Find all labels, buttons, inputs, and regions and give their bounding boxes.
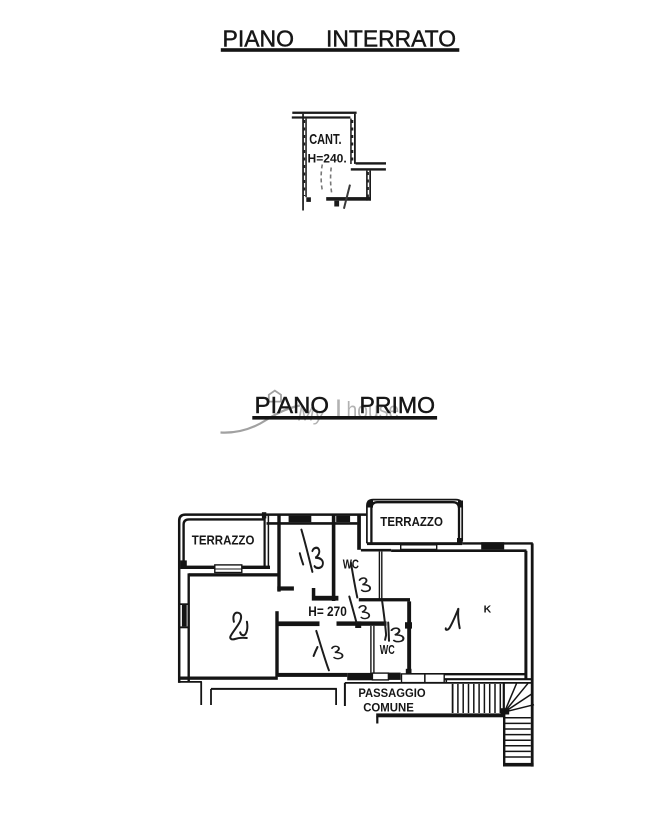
svg-text:PIANO: PIANO xyxy=(255,392,330,418)
svg-text:PRIMO: PRIMO xyxy=(360,392,436,418)
svg-text:CANT.: CANT. xyxy=(309,131,341,148)
svg-text:PIANO: PIANO xyxy=(223,26,295,52)
svg-text:COMUNE: COMUNE xyxy=(363,701,414,715)
svg-text:WC: WC xyxy=(380,642,395,657)
svg-text:PASSAGGIO: PASSAGGIO xyxy=(358,686,425,700)
svg-text:TERRAZZO: TERRAZZO xyxy=(192,533,255,547)
svg-text:H= 270: H= 270 xyxy=(308,603,347,619)
svg-text:H=240.: H=240. xyxy=(308,152,347,166)
svg-text:TERRAZZO: TERRAZZO xyxy=(380,515,443,529)
svg-text:K: K xyxy=(484,603,492,615)
svg-text:INTERRATO: INTERRATO xyxy=(326,26,456,52)
